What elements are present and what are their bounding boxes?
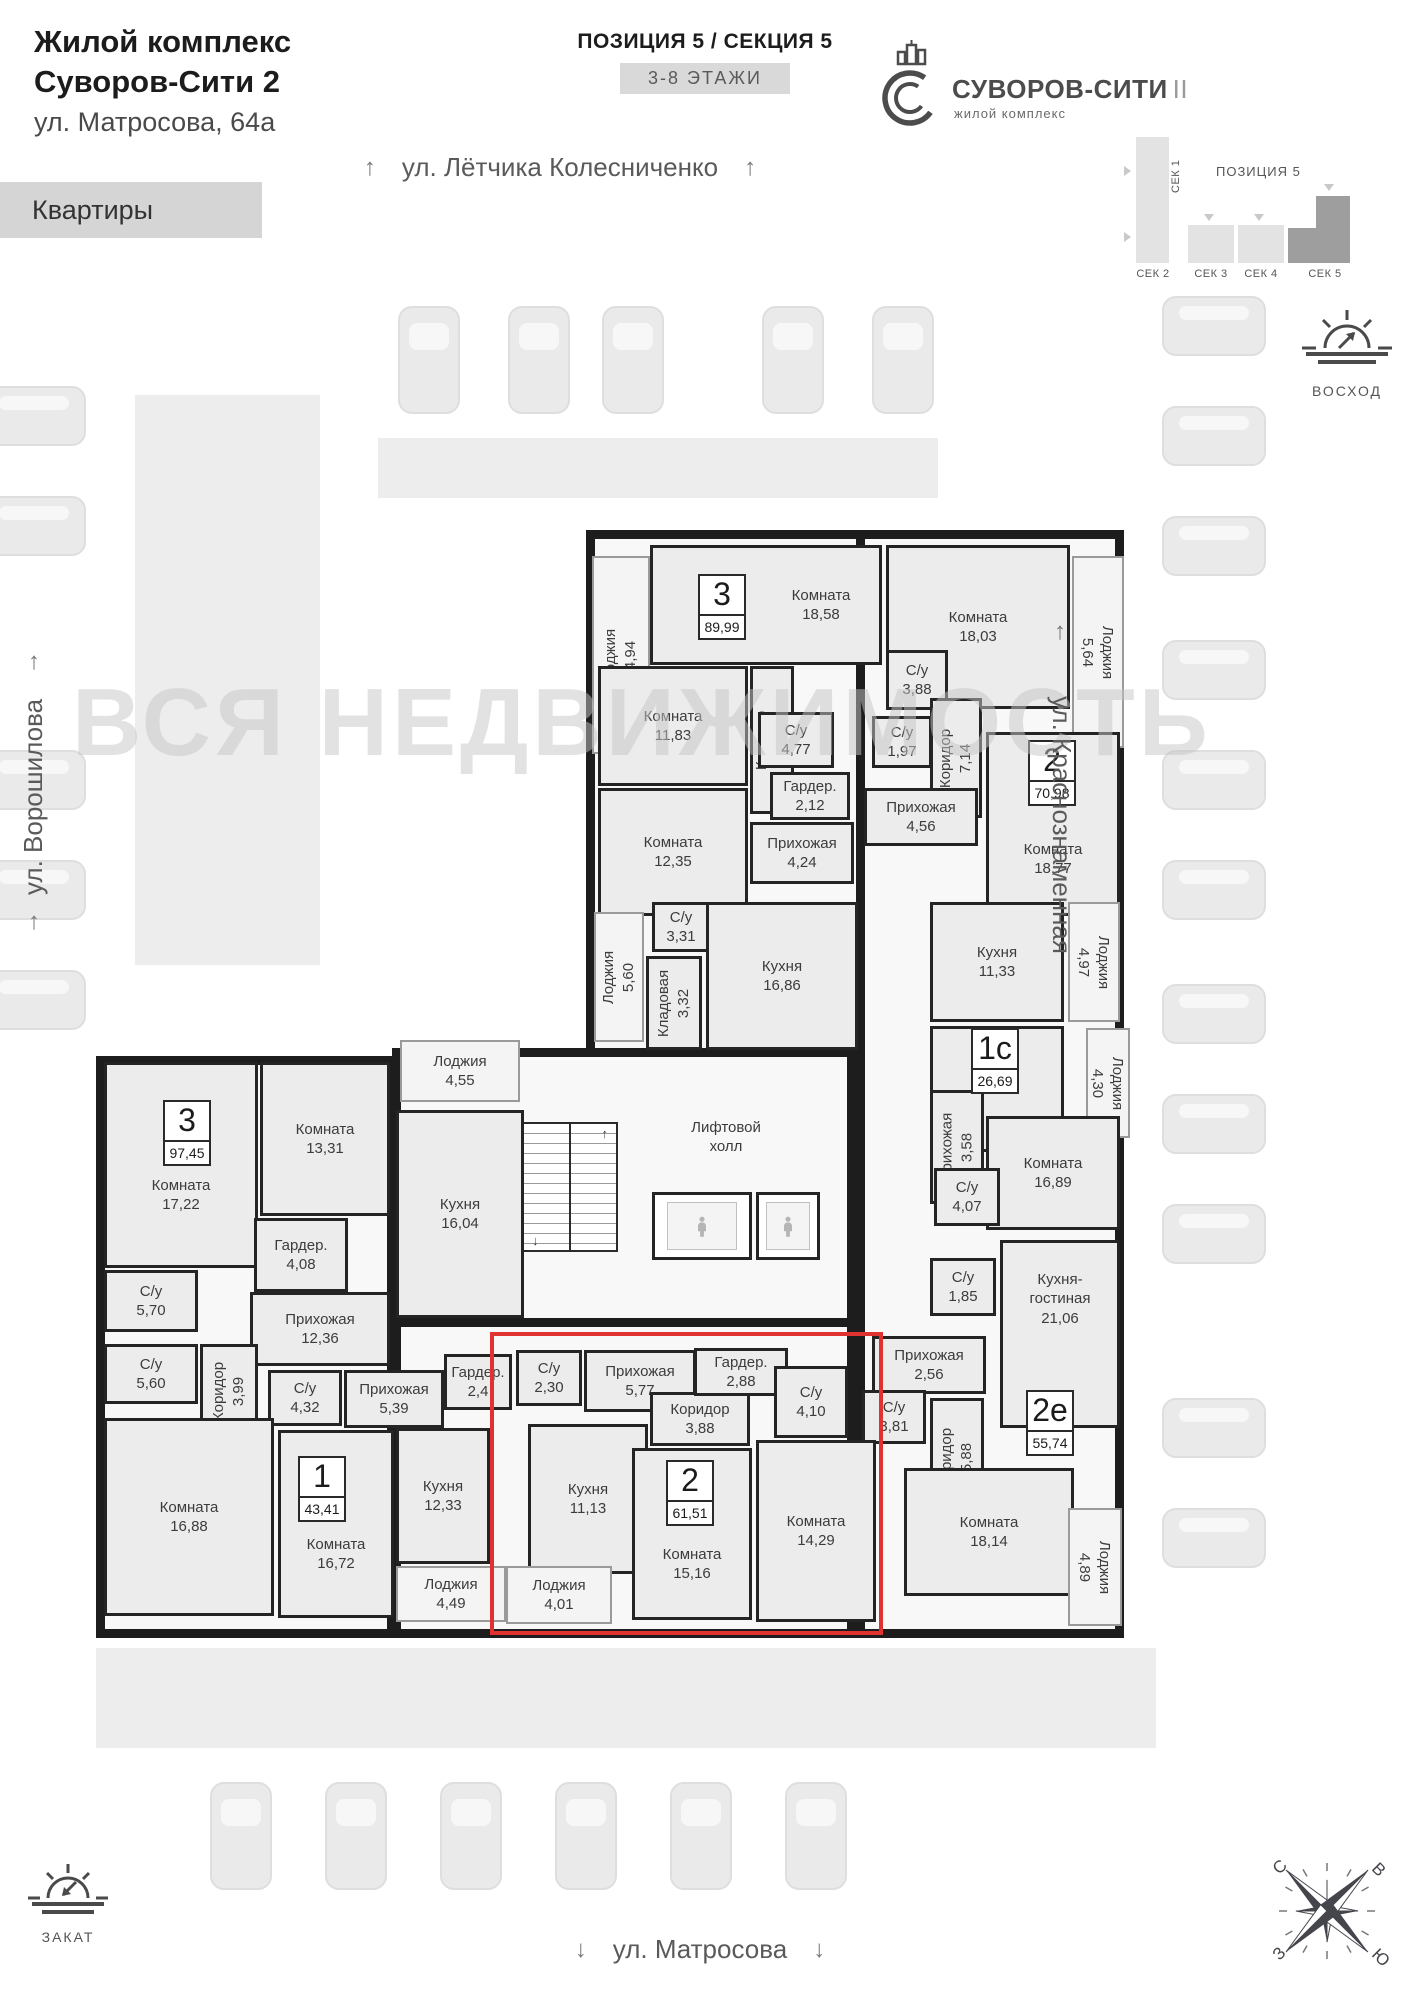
- apartment-type: 3: [700, 576, 744, 616]
- entrance-arrow-icon: [1254, 214, 1264, 221]
- room-label: Гардер.2,12: [783, 777, 836, 816]
- room: Лифтовойхолл: [636, 1072, 816, 1202]
- room-label: Гардер.4,08: [274, 1236, 327, 1275]
- compass-rose-icon: С В З Ю: [1252, 1836, 1402, 1986]
- floorplan: Лоджия4,94Комната18,58Комната11,83Комнат…: [0, 0, 1413, 2000]
- street-bottom-label: ул. Матросова: [613, 1934, 787, 1965]
- room: Прихожая5,39: [344, 1370, 444, 1428]
- person-icon: [780, 1214, 796, 1238]
- arrow-down-icon: ↓: [575, 1936, 587, 1964]
- car-icon: [1162, 984, 1266, 1044]
- car-icon: [325, 1782, 387, 1890]
- street-right: ул. Краснознаменная: [1046, 660, 1077, 990]
- room: С/у1,97: [872, 716, 932, 768]
- room: С/у4,07: [934, 1168, 1000, 1226]
- room-label: Коридор7,14: [937, 728, 976, 787]
- room: Прихожая12,36: [250, 1292, 390, 1366]
- car-icon: [1162, 406, 1266, 466]
- street-left-label: ул. Ворошилова: [18, 699, 49, 895]
- sunrise-label: ВОСХОД: [1292, 383, 1402, 399]
- room-label: Лоджия4,55: [433, 1052, 486, 1091]
- room-label: С/у4,77: [781, 721, 810, 760]
- parking-strip: [135, 395, 320, 965]
- minimap-label-sec4: СЕК 4: [1238, 268, 1284, 280]
- room: С/у5,60: [104, 1344, 198, 1404]
- room: Лоджия5,64: [1072, 556, 1124, 748]
- room-label: Прихожая4,24: [767, 834, 837, 873]
- logo: СУВОРОВ-СИТИII жилой комплекс: [876, 40, 948, 137]
- elevator: [652, 1192, 752, 1260]
- room: Лоджия5,60: [594, 912, 644, 1042]
- room-label: С/у3,31: [666, 908, 695, 947]
- room: Комната12,35: [598, 788, 748, 916]
- logo-name: СУВОРОВ-СИТИII: [952, 74, 1188, 105]
- apartments-button[interactable]: Квартиры: [0, 182, 262, 238]
- car-icon: [1162, 1204, 1266, 1264]
- car-icon: [872, 306, 934, 414]
- room-label: Кухня-гостиная21,06: [1030, 1270, 1091, 1329]
- room-label: Комната11,83: [644, 707, 703, 746]
- room: Гардер.2,12: [770, 772, 850, 820]
- entrance-arrow-icon: [1124, 166, 1131, 176]
- entrance-arrow-icon: [1124, 232, 1131, 242]
- room-label: Комната18,03: [949, 608, 1008, 647]
- car-icon: [555, 1782, 617, 1890]
- apartment-area: 43,41: [300, 1498, 344, 1520]
- car-icon: [398, 306, 460, 414]
- parking-strip: [96, 1648, 1156, 1748]
- compass-west-label: З: [1269, 1943, 1290, 1964]
- apartment-badge[interactable]: 397,45: [163, 1100, 211, 1166]
- room-label: Прихожая2,56: [894, 1346, 964, 1385]
- minimap-section-2[interactable]: [1136, 213, 1169, 263]
- arrow-up-icon: ↑: [744, 154, 756, 182]
- car-icon: [440, 1782, 502, 1890]
- car-icon: [0, 496, 86, 556]
- room-label: Кухня16,86: [762, 957, 802, 996]
- room-label: Прихожая5,39: [359, 1380, 429, 1419]
- room-label: С/у3,88: [902, 661, 931, 700]
- minimap-section-4[interactable]: [1238, 225, 1284, 263]
- parking-strip: [378, 438, 938, 498]
- room-label: Прихожая4,56: [886, 798, 956, 837]
- apartment-area: 89,99: [700, 616, 744, 638]
- car-icon: [508, 306, 570, 414]
- room-label: Кладовая3,32: [655, 969, 694, 1036]
- car-icon: [210, 1782, 272, 1890]
- car-icon: [1162, 516, 1266, 576]
- room-label: С/у1,97: [887, 723, 916, 762]
- room-label: Лоджия4,89: [1076, 1540, 1115, 1593]
- car-icon: [1162, 640, 1266, 700]
- section-minimap: СЕК 1 ПОЗИЦИЯ 5 СЕК 2 СЕК 3 СЕК 4 СЕК 5: [1128, 128, 1368, 288]
- room: Лоджия4,55: [400, 1040, 520, 1102]
- elevator: [756, 1192, 820, 1260]
- arrow-down-icon: ↓: [813, 1936, 825, 1964]
- room-label: Лоджия5,64: [1079, 625, 1118, 678]
- room: Лоджия4,89: [1068, 1508, 1122, 1626]
- room: Комната16,88: [104, 1418, 274, 1616]
- logo-emblem-icon: [876, 40, 948, 132]
- room: Кухня16,04: [396, 1110, 524, 1318]
- arrow-up-icon: ↑: [364, 154, 376, 182]
- room: С/у4,77: [758, 712, 834, 768]
- street-top-label: ул. Лётчика Колесниченко: [402, 152, 718, 183]
- room: Комната13,31: [260, 1062, 390, 1216]
- room-label: Кухня16,04: [440, 1195, 480, 1234]
- sunset-marker: ЗАКАТ: [20, 1852, 116, 1945]
- room-label: С/у4,07: [952, 1178, 981, 1217]
- compass-north-label: С: [1269, 1856, 1291, 1878]
- room-label: Лоджия4,30: [1089, 1056, 1128, 1109]
- apartment-type: 1с: [973, 1030, 1017, 1070]
- apartment-type: 2е: [1028, 1392, 1072, 1432]
- sunset-icon: [20, 1852, 116, 1922]
- car-icon: [762, 306, 824, 414]
- room: Кухня16,86: [706, 902, 858, 1050]
- entrance-arrow-icon: [1204, 214, 1214, 221]
- minimap-section-5[interactable]: [1288, 228, 1316, 263]
- room: Гардер.4,08: [254, 1218, 348, 1292]
- room: Комната18,58: [650, 545, 882, 665]
- room-label: Комната13,31: [296, 1120, 355, 1159]
- room: Кухня12,33: [396, 1428, 490, 1564]
- room: С/у5,70: [104, 1270, 198, 1332]
- apartment-badge[interactable]: 2е55,74: [1026, 1390, 1074, 1456]
- compass-south-label: Ю: [1368, 1945, 1394, 1971]
- logo-suffix: II: [1173, 74, 1188, 104]
- room-label: С/у5,60: [136, 1355, 165, 1394]
- apartment-badge[interactable]: 143,41: [298, 1456, 346, 1522]
- room-label: Лоджия5,60: [600, 950, 639, 1003]
- car-icon: [602, 306, 664, 414]
- street-bottom: ↓ ул. Матросова ↓: [520, 1934, 880, 1965]
- room: Комната11,83: [598, 666, 748, 786]
- room: С/у3,31: [652, 902, 710, 952]
- minimap-label-sec5: СЕК 5: [1300, 268, 1350, 280]
- car-icon: [1162, 750, 1266, 810]
- room: Прихожая4,24: [750, 822, 854, 884]
- room-label: Комната18,58: [792, 586, 851, 625]
- room-label: Прихожая12,36: [285, 1310, 355, 1349]
- room: Комната18,14: [904, 1468, 1074, 1596]
- car-icon: [0, 386, 86, 446]
- room: Прихожая2,56: [872, 1336, 986, 1394]
- floors-badge: 3-8 ЭТАЖИ: [620, 63, 790, 94]
- minimap-section-3[interactable]: [1188, 225, 1234, 263]
- room-label: Лоджия4,97: [1075, 935, 1114, 988]
- car-icon: [1162, 860, 1266, 920]
- minimap-section-5-wing[interactable]: [1316, 196, 1350, 263]
- apartment-area: 55,74: [1028, 1432, 1072, 1454]
- room-label: С/у3,81: [879, 1398, 908, 1437]
- room: Комната16,89: [986, 1116, 1120, 1230]
- room-label: С/у1,85: [948, 1268, 977, 1307]
- floorplan-page: Жилой комплекс Суворов-Сити 2 ул. Матрос…: [0, 0, 1413, 2000]
- arrow-up-icon: ↑: [28, 648, 40, 676]
- room-label: Комната16,89: [1024, 1154, 1083, 1193]
- room-label: Коридор3,99: [210, 1361, 249, 1420]
- room: С/у4,32: [268, 1370, 342, 1426]
- sunrise-icon: [1292, 296, 1402, 376]
- person-icon: [694, 1214, 710, 1238]
- arrow-up-icon: ↑: [1054, 618, 1066, 646]
- car-icon: [0, 970, 86, 1030]
- room-label: Лоджия4,49: [424, 1575, 477, 1614]
- room-label: Комната17,22: [152, 1176, 211, 1215]
- apartment-type: 3: [165, 1102, 209, 1142]
- car-icon: [785, 1782, 847, 1890]
- room-label: Комната12,35: [644, 833, 703, 872]
- car-icon: [1162, 296, 1266, 356]
- highlighted-apartment[interactable]: [490, 1332, 883, 1635]
- minimap-section-1[interactable]: [1136, 137, 1169, 213]
- arrow-up-icon: ↑: [28, 908, 40, 936]
- room: С/у1,85: [930, 1258, 996, 1316]
- street-left: ул. Ворошилова: [18, 692, 49, 902]
- room-label: Комната16,88: [160, 1498, 219, 1537]
- complex-title: Жилой комплекс Суворов-Сити 2 ул. Матрос…: [34, 22, 291, 138]
- logo-subtitle: жилой комплекс: [954, 106, 1066, 121]
- car-icon: [1162, 1094, 1266, 1154]
- stairs: ↓↑: [522, 1122, 618, 1252]
- complex-title-line1: Жилой комплекс: [34, 22, 291, 62]
- minimap-label-sec2: СЕК 2: [1130, 268, 1176, 280]
- room-label: Кухня12,33: [423, 1477, 463, 1516]
- room: Кладовая3,32: [646, 956, 702, 1050]
- room-label: Кухня11,33: [977, 943, 1017, 982]
- apartment-area: 97,45: [165, 1142, 209, 1164]
- car-icon: [670, 1782, 732, 1890]
- apartment-area: 26,69: [973, 1070, 1017, 1092]
- compass-east-label: В: [1368, 1859, 1389, 1880]
- room-label: С/у4,32: [290, 1379, 319, 1418]
- room-label: С/у5,70: [136, 1282, 165, 1321]
- apartment-badge[interactable]: 1с26,69: [971, 1028, 1019, 1094]
- apartment-type: 1: [300, 1458, 344, 1498]
- room-label: Комната18,14: [960, 1513, 1019, 1552]
- car-icon: [1162, 1508, 1266, 1568]
- minimap-position-label: ПОЗИЦИЯ 5: [1216, 164, 1301, 179]
- apartment-badge[interactable]: 389,99: [698, 574, 746, 640]
- room-label: Лифтовойхолл: [691, 1118, 761, 1157]
- minimap-label-sec3: СЕК 3: [1188, 268, 1234, 280]
- room: Прихожая4,56: [864, 788, 978, 846]
- sunrise-marker: ВОСХОД: [1292, 296, 1402, 399]
- room: Кухня11,33: [930, 902, 1064, 1022]
- complex-address: ул. Матросова, 64а: [34, 107, 291, 138]
- street-top: ↑ ул. Лётчика Колесниченко ↑: [350, 152, 770, 183]
- entrance-arrow-icon: [1324, 184, 1334, 191]
- car-icon: [1162, 1398, 1266, 1458]
- room-label: Комната16,72: [307, 1535, 366, 1574]
- minimap-label-sec1: СЕК 1: [1170, 142, 1182, 210]
- sunset-label: ЗАКАТ: [20, 1929, 116, 1945]
- complex-title-line2: Суворов-Сити 2: [34, 62, 291, 102]
- street-right-label: ул. Краснознаменная: [1046, 696, 1077, 954]
